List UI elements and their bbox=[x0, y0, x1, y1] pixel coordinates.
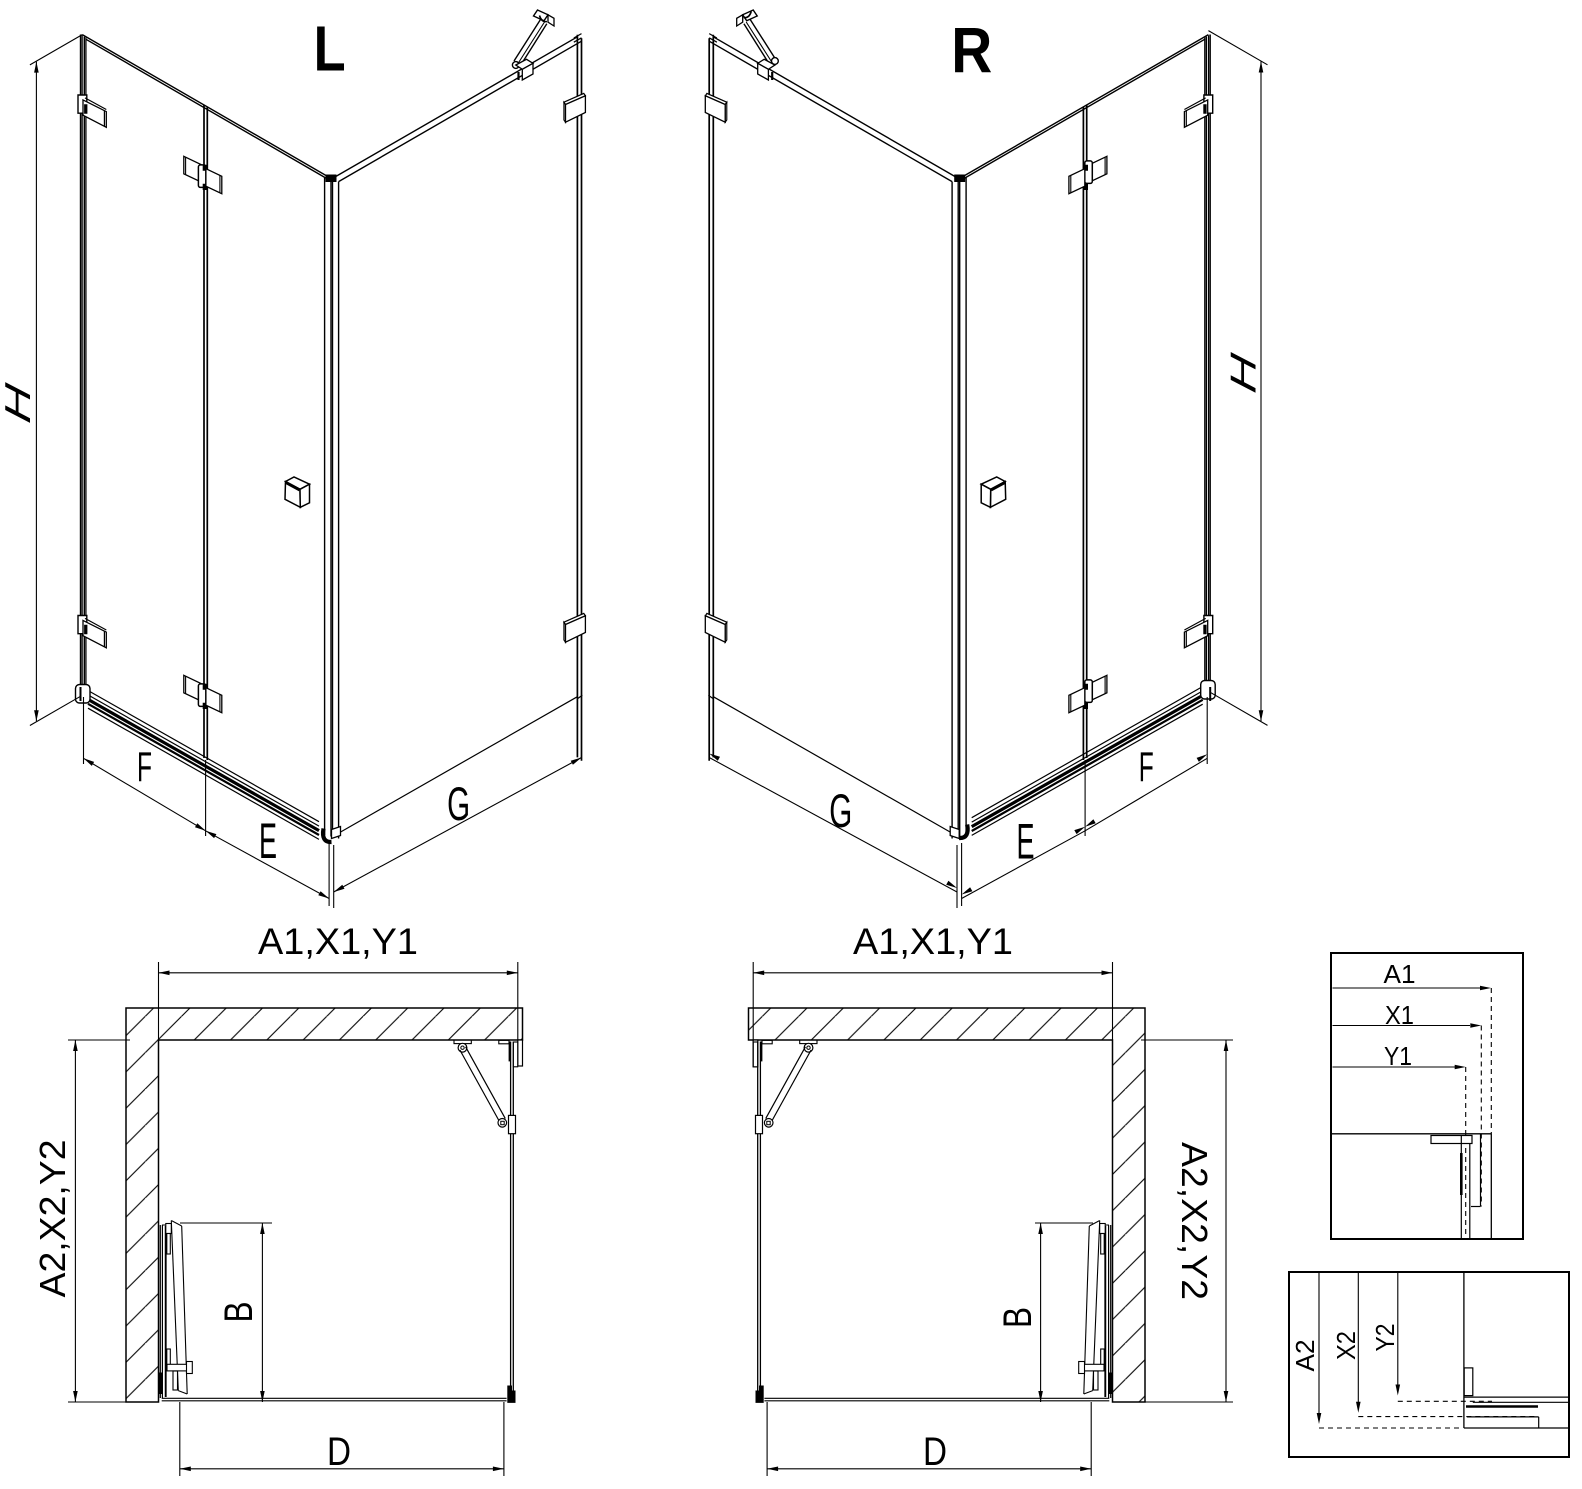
svg-text:A1: A1 bbox=[1384, 959, 1416, 989]
svg-text:F: F bbox=[137, 743, 152, 790]
svg-text:A2,X2,Y2: A2,X2,Y2 bbox=[1174, 1142, 1215, 1300]
svg-text:D: D bbox=[923, 1430, 947, 1474]
svg-text:A2: A2 bbox=[1290, 1340, 1320, 1372]
svg-text:B: B bbox=[996, 1307, 1040, 1328]
svg-text:F: F bbox=[1139, 743, 1154, 790]
svg-text:A2,X2,Y2: A2,X2,Y2 bbox=[32, 1140, 73, 1298]
svg-text:G: G bbox=[829, 784, 852, 837]
svg-text:R: R bbox=[951, 15, 992, 87]
svg-text:E: E bbox=[1017, 814, 1035, 870]
svg-text:B: B bbox=[217, 1302, 261, 1323]
svg-text:A1,X1,Y1: A1,X1,Y1 bbox=[258, 921, 418, 962]
svg-text:E: E bbox=[259, 813, 277, 869]
svg-text:A1,X1,Y1: A1,X1,Y1 bbox=[853, 921, 1013, 962]
svg-text:L: L bbox=[314, 13, 346, 85]
svg-text:G: G bbox=[447, 777, 470, 830]
svg-text:D: D bbox=[327, 1430, 351, 1474]
svg-text:X2: X2 bbox=[1331, 1331, 1361, 1360]
svg-text:Y2: Y2 bbox=[1370, 1324, 1400, 1352]
